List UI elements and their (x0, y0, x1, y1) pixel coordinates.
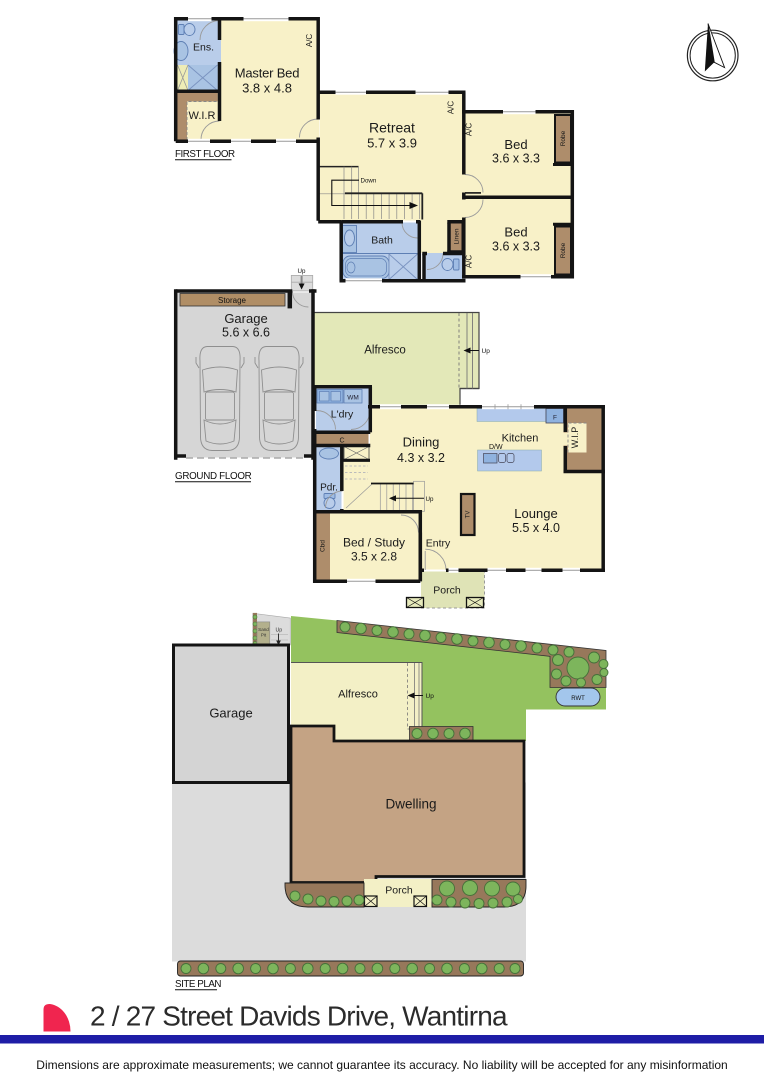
svg-text:3.6 x 3.3: 3.6 x 3.3 (492, 152, 540, 166)
svg-text:Cbd: Cbd (320, 540, 327, 552)
svg-text:2 / 27 Street Davids Drive, Wa: 2 / 27 Street Davids Drive, Wantirna (90, 1001, 508, 1032)
svg-text:Lounge: Lounge (514, 506, 557, 521)
svg-text:Bath: Bath (371, 235, 393, 247)
svg-text:A/C: A/C (305, 34, 314, 48)
svg-text:Bed: Bed (504, 225, 527, 240)
svg-text:Up: Up (275, 628, 282, 634)
svg-text:Storage: Storage (218, 296, 247, 305)
svg-text:A/C: A/C (465, 255, 474, 269)
svg-text:RWT: RWT (571, 696, 585, 702)
svg-text:5.7 x 3.9: 5.7 x 3.9 (367, 136, 417, 151)
svg-text:Down: Down (361, 178, 377, 185)
svg-text:Up: Up (482, 348, 491, 355)
svg-text:TV: TV (466, 511, 472, 519)
svg-text:Ens.: Ens. (193, 42, 214, 54)
svg-text:4.3 x 3.2: 4.3 x 3.2 (397, 451, 445, 465)
svg-text:Retreat: Retreat (369, 120, 415, 136)
svg-text:Garage: Garage (209, 706, 252, 721)
svg-text:Linen: Linen (454, 228, 461, 244)
svg-text:3.5 x 2.8: 3.5 x 2.8 (351, 550, 397, 564)
svg-text:Master Bed: Master Bed (235, 66, 299, 81)
svg-text:Porch: Porch (433, 585, 461, 597)
svg-text:L'dry: L'dry (331, 409, 354, 421)
svg-text:Dimensions are approximate mea: Dimensions are approximate measurements;… (36, 1058, 727, 1072)
svg-text:Sand: Sand (258, 627, 269, 632)
svg-text:A/C: A/C (447, 101, 456, 115)
svg-text:Robe: Robe (560, 242, 567, 258)
svg-text:Alfresco: Alfresco (338, 689, 378, 701)
svg-text:A/C: A/C (465, 123, 474, 137)
svg-text:Garage: Garage (224, 311, 267, 326)
svg-text:Up: Up (426, 693, 435, 700)
svg-text:SITE PLAN: SITE PLAN (175, 979, 221, 990)
svg-text:Entry: Entry (426, 538, 451, 550)
svg-text:5.6 x 6.6: 5.6 x 6.6 (222, 326, 270, 340)
svg-text:Dining: Dining (403, 435, 440, 450)
svg-text:Alfresco: Alfresco (364, 345, 406, 357)
svg-text:Up: Up (426, 496, 434, 503)
svg-text:Up: Up (298, 268, 306, 275)
svg-text:C: C (339, 438, 344, 445)
svg-text:W.I.R: W.I.R (189, 110, 216, 122)
svg-text:Pit: Pit (261, 633, 267, 638)
svg-text:Bed / Study: Bed / Study (343, 536, 405, 550)
svg-text:Porch: Porch (385, 885, 413, 897)
svg-text:D/W: D/W (489, 444, 503, 451)
svg-text:3.8 x 4.8: 3.8 x 4.8 (242, 81, 292, 96)
svg-text:WM: WM (347, 395, 359, 402)
svg-text:Pdr.: Pdr. (320, 483, 338, 494)
svg-text:5.5 x 4.0: 5.5 x 4.0 (512, 521, 560, 535)
svg-text:FIRST FLOOR: FIRST FLOOR (175, 149, 235, 160)
svg-text:Bed: Bed (504, 137, 527, 152)
svg-text:3.6 x 3.3: 3.6 x 3.3 (492, 240, 540, 254)
svg-text:GROUND FLOOR: GROUND FLOOR (175, 471, 252, 482)
svg-text:Robe: Robe (560, 130, 567, 146)
svg-text:W.I.P: W.I.P (570, 427, 580, 449)
svg-text:Kitchen: Kitchen (502, 433, 539, 445)
svg-text:Dwelling: Dwelling (385, 797, 436, 812)
svg-text:F: F (553, 415, 557, 422)
